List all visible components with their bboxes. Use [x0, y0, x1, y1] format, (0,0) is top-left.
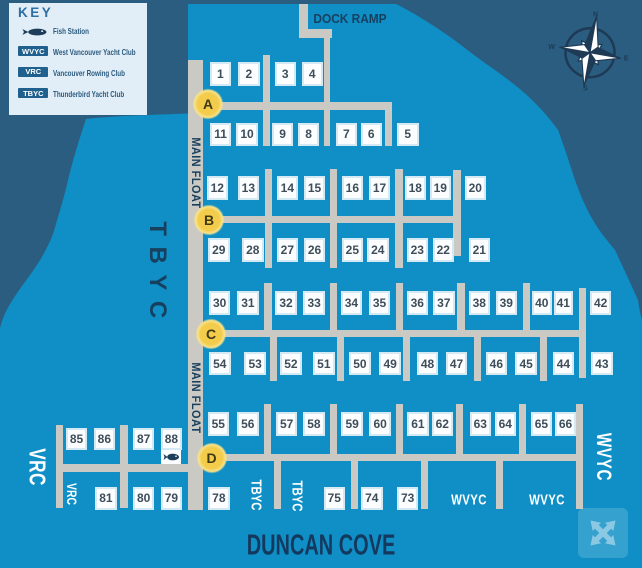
svg-text:S: S: [583, 86, 588, 93]
svg-text:N: N: [593, 12, 598, 19]
svg-text:E: E: [624, 56, 629, 63]
svg-text:W: W: [548, 44, 555, 51]
